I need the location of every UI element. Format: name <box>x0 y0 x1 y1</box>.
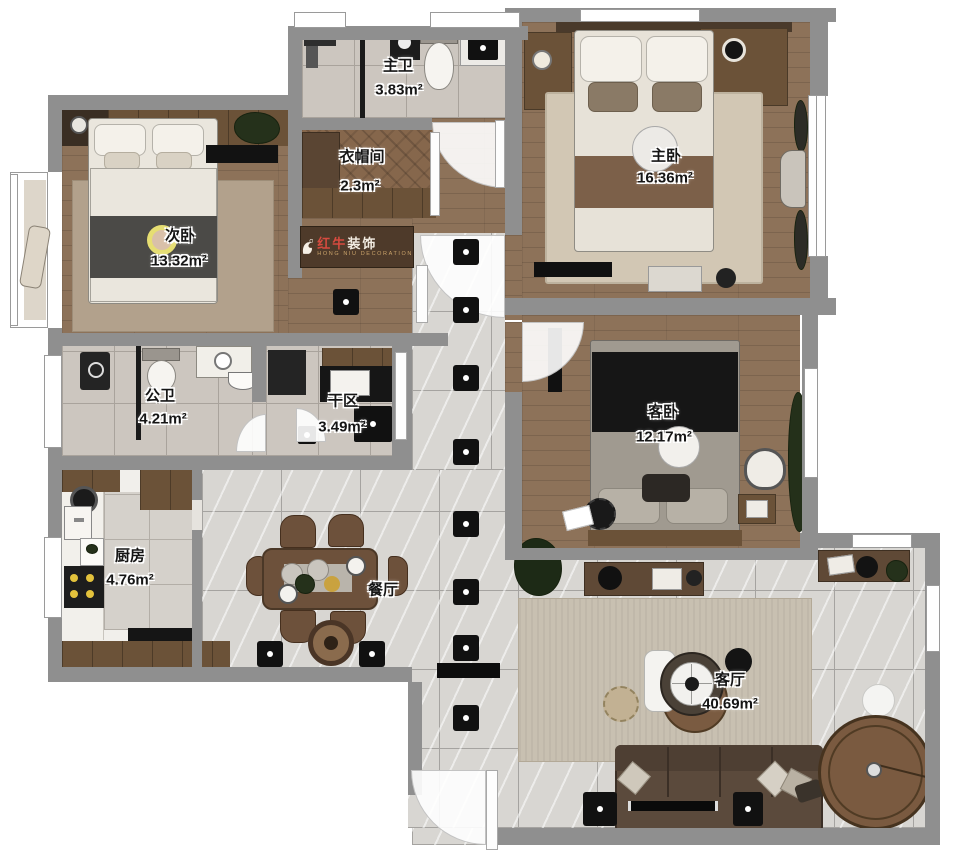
cloakroom-wardrobe-left <box>302 132 340 190</box>
door-gap-second-bedroom <box>288 278 302 333</box>
light-dining-2 <box>359 641 385 667</box>
label-dry-area-name: 干区 <box>328 394 358 409</box>
wall-kitchen-east-lower <box>192 530 202 667</box>
kitchen-sink <box>64 506 92 540</box>
kitchen-cabinet-top-2 <box>140 470 192 510</box>
light-corridor-6 <box>453 579 479 605</box>
guest-nightstand-top <box>746 500 768 518</box>
kitchen-counter-bar <box>128 628 192 641</box>
master-stool <box>716 268 736 288</box>
bay-glass <box>10 174 18 326</box>
wall-mbed-east-upper <box>810 8 828 96</box>
master-bench <box>648 266 702 292</box>
label-dry-area-area: 3.49m² <box>318 420 366 435</box>
light-corridor-8 <box>453 705 479 731</box>
light-corridor-5 <box>453 511 479 537</box>
guest-cushion <box>642 474 690 502</box>
master-bath-partition <box>360 28 365 118</box>
label-master-bath-area: 3.83m² <box>375 83 423 98</box>
wall-guest-bottom <box>505 548 818 560</box>
label-living-name: 客厅 <box>715 673 745 688</box>
master-bath-shower-hose <box>306 46 318 68</box>
second-bedroom-plant <box>234 112 280 144</box>
window-guest-east <box>804 368 818 478</box>
window-public-bath <box>44 355 62 448</box>
master-pillow-2 <box>646 36 708 82</box>
kitchen-cabinet-bottom <box>62 641 230 667</box>
window-living-top <box>852 534 912 548</box>
door-gap-guest-bedroom <box>505 322 522 392</box>
light-hall <box>333 289 359 315</box>
label-master-bedroom-name: 主卧 <box>651 149 681 164</box>
door-leaf-entrance <box>486 770 498 850</box>
second-bedroom-tv <box>206 145 278 163</box>
living-pendant-white <box>862 684 895 717</box>
living-round-chair-hub <box>866 762 882 778</box>
living-desk1-bowl <box>686 570 702 586</box>
dining-dish-yellow <box>324 576 340 592</box>
door-leaf-master-bath <box>495 120 505 188</box>
label-public-bath-area: 4.21m² <box>139 412 187 427</box>
master-tv <box>534 262 612 277</box>
label-kitchen-name: 厨房 <box>115 549 145 564</box>
dining-plate-white-2 <box>278 584 298 604</box>
guest-headboard <box>588 530 742 546</box>
window-living-east <box>926 585 940 652</box>
label-cloakroom-name: 衣帽间 <box>339 150 384 165</box>
light-corridor-4 <box>453 439 479 465</box>
brand-subtitle: HONG NIU DECORATION <box>317 251 413 257</box>
label-dining-name: 餐厅 <box>368 583 398 598</box>
window-mbath-1 <box>294 12 346 28</box>
living-sofa-div-1 <box>667 747 669 797</box>
living-desk2-plant <box>886 560 908 582</box>
label-kitchen-area: 4.76m² <box>106 573 154 588</box>
living-lamp-right <box>733 792 763 826</box>
label-public-bath-name: 公卫 <box>145 389 175 404</box>
window-mbed-east <box>808 95 826 257</box>
dining-cart-center <box>324 636 338 650</box>
brand-text: 红牛装饰 HONG NIU DECORATION <box>317 237 413 257</box>
window-kitchen <box>44 537 62 618</box>
guest-chair <box>744 448 786 490</box>
door-leaf-cloakroom <box>430 132 440 216</box>
master-cushion-2 <box>652 82 702 112</box>
dining-chair-top-2 <box>328 514 364 547</box>
brand-name-white: 装饰 <box>347 236 377 251</box>
label-cloakroom-area: 2.3m² <box>340 179 379 194</box>
light-corridor-7 <box>453 635 479 661</box>
living-pouf <box>603 686 639 722</box>
master-curtain-1 <box>794 100 808 152</box>
dining-chair-top-1 <box>280 515 316 548</box>
wall-left-upper <box>48 95 62 172</box>
kitchen-faucet <box>74 518 84 522</box>
wall-corridor-east-upper <box>505 8 522 235</box>
wall-dining-bottom <box>48 667 412 682</box>
label-living-area: 40.69m² <box>702 697 758 712</box>
wall-living-east <box>925 533 940 828</box>
floor-plan: 红牛装饰 HONG NIU DECORATION 主卫 3.83m² 衣帽间 2… <box>0 0 960 864</box>
label-second-bedroom-name: 次卧 <box>165 229 195 244</box>
kitchen-flame-3 <box>70 590 78 598</box>
label-second-bedroom-area: 13.32m² <box>151 254 207 269</box>
living-ac-vent <box>437 663 500 678</box>
living-desk1-chair <box>598 566 622 590</box>
window-mbed-top <box>580 9 700 22</box>
kitchen-stove <box>64 566 104 608</box>
master-cushion-1 <box>588 82 638 112</box>
wall-kitchen-east-upper <box>192 470 202 500</box>
label-guest-bedroom-area: 12.17m² <box>636 430 692 445</box>
living-desk1-pad <box>652 568 682 590</box>
label-guest-bedroom-name: 客卧 <box>648 405 678 420</box>
window-mbath-2 <box>430 12 520 28</box>
kitchen-flame-2 <box>86 574 94 582</box>
master-nightstand-bowl <box>722 38 746 62</box>
living-desk2-pad <box>827 554 855 575</box>
master-bath-toilet-bowl <box>424 42 454 90</box>
master-lounge <box>780 150 806 208</box>
light-corridor-3 <box>453 365 479 391</box>
kitchen-tray-green <box>86 544 98 554</box>
brand-name-red: 红牛 <box>317 236 347 251</box>
wall-2bed-top <box>48 95 300 110</box>
living-lamp-left <box>583 792 617 826</box>
wall-mbath-bottom <box>288 118 432 130</box>
master-pillow-1 <box>580 36 642 82</box>
living-sofa-div-2 <box>719 747 721 797</box>
door-gap-kitchen <box>192 500 202 530</box>
wall-bath-bottom <box>48 456 412 470</box>
dining-plate-white-1 <box>346 556 366 576</box>
public-bath-washer-ring <box>88 362 104 378</box>
wall-2bed-bottom <box>48 333 448 346</box>
wall-corridor-east-lower <box>505 392 522 548</box>
light-dining-1 <box>257 641 283 667</box>
door-leaf-master-bedroom <box>416 265 428 323</box>
bull-logo-icon <box>301 236 313 258</box>
public-bath-sink <box>214 352 232 370</box>
master-curtain-2 <box>794 210 808 270</box>
master-nightstand-decor <box>532 50 552 70</box>
outside-mask-bottom-left <box>0 682 408 864</box>
living-coffee-table-hub <box>685 677 699 691</box>
dining-greens <box>295 574 315 594</box>
outside-mask-right <box>818 315 925 533</box>
light-corridor-2 <box>453 297 479 323</box>
wall-living-bottom <box>486 828 940 845</box>
second-bedroom-decor-disc <box>70 116 88 134</box>
living-soundbar <box>628 801 718 811</box>
kitchen-flame-4 <box>86 590 94 598</box>
living-desk2-chair <box>856 556 878 578</box>
wall-mbed-bottom <box>505 298 836 315</box>
label-master-bath-name: 主卫 <box>383 59 413 74</box>
dry-area-cabinet-tall <box>268 350 306 395</box>
kitchen-flame-1 <box>70 574 78 582</box>
wall-mbath-top <box>288 26 528 40</box>
label-master-bedroom-area: 16.36m² <box>637 171 693 186</box>
brand-board: 红牛装饰 HONG NIU DECORATION <box>300 226 414 268</box>
light-corridor-1 <box>453 239 479 265</box>
brand-name: 红牛装饰 <box>317 237 413 251</box>
wall-bath-divider <box>252 346 266 402</box>
door-leaf-dry-area <box>395 352 407 440</box>
